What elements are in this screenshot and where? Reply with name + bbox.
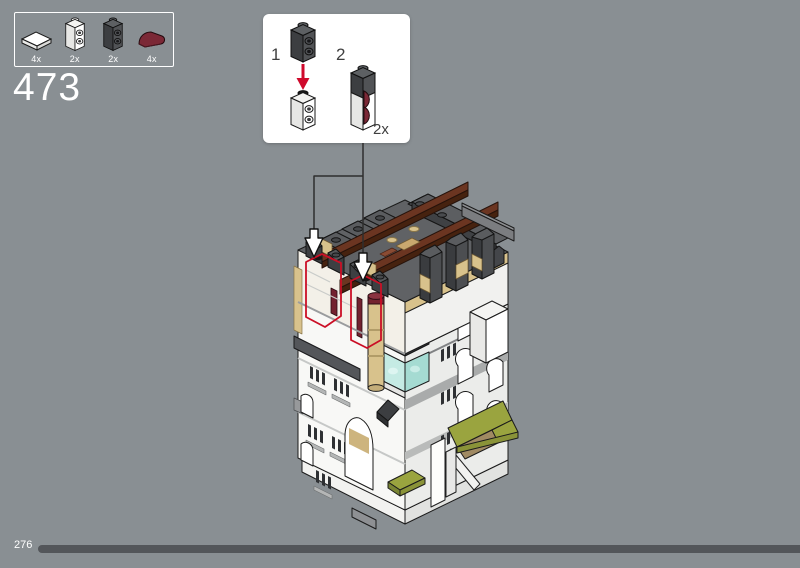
right-towers: [470, 301, 508, 363]
progress-bar[interactable]: [38, 545, 800, 553]
model-figure: [0, 0, 800, 568]
page-number: 276: [14, 539, 32, 551]
